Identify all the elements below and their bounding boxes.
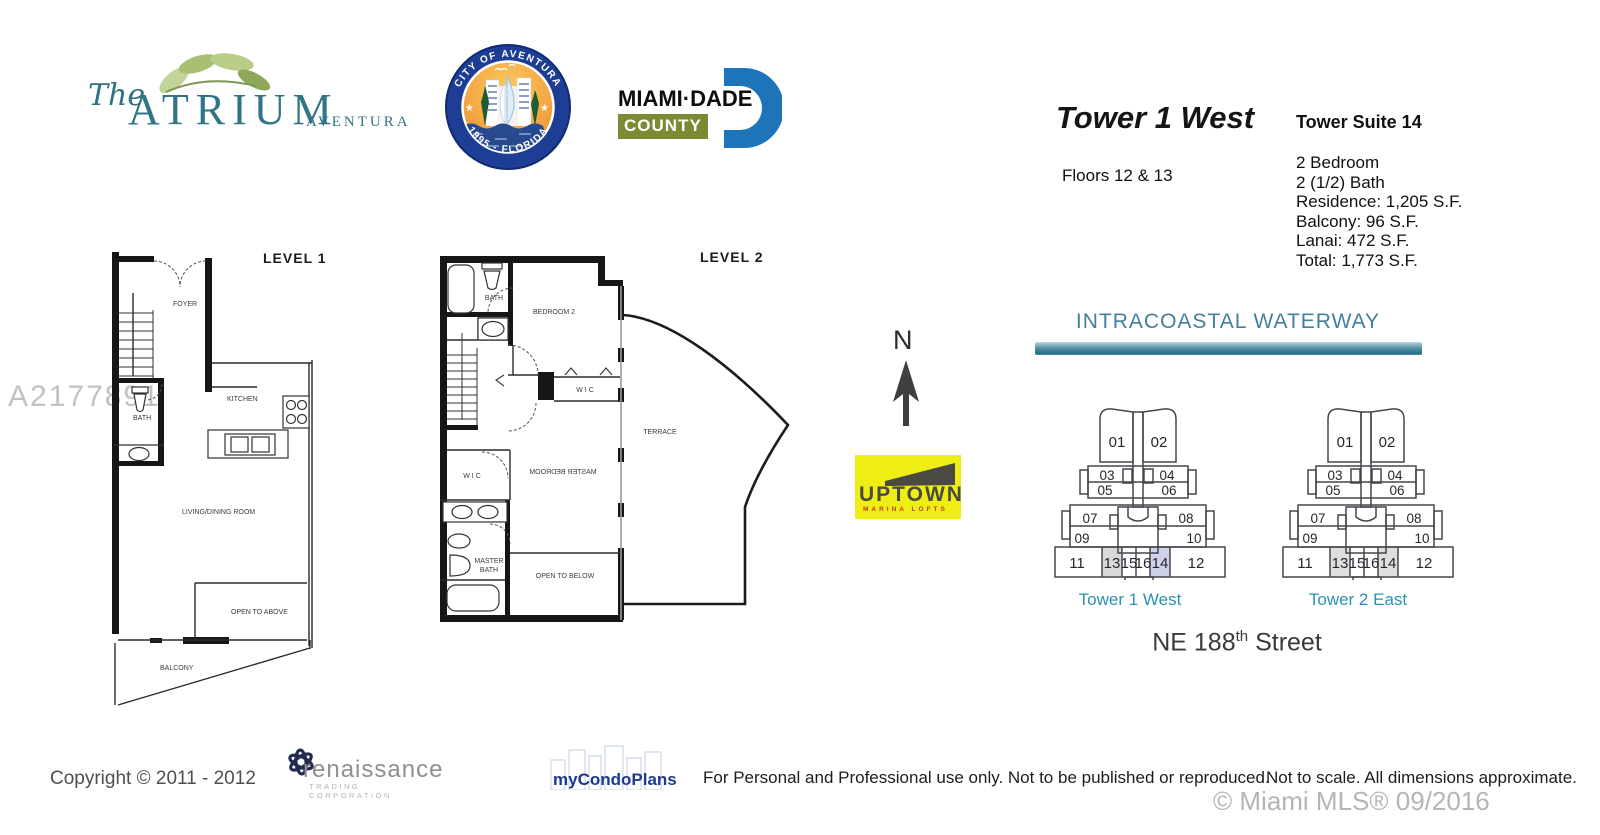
tower-2-east-label: Tower 2 East [1258, 590, 1458, 610]
sink-basin-right [252, 437, 269, 452]
toilet-bowl-icon [484, 271, 500, 290]
svg-text:10: 10 [1186, 531, 1201, 546]
uptown-logo: UPTOWN MARINA LOFTS [855, 455, 961, 519]
svg-text:09: 09 [1302, 531, 1317, 546]
t2-unit-numbers: 01 02 03 04 05 06 07 08 09 10 11 13 15 1… [1297, 434, 1432, 572]
svg-text:01: 01 [1109, 434, 1126, 451]
street-sup: th [1236, 628, 1249, 645]
toilet-tank-icon [482, 263, 502, 269]
svg-text:14: 14 [1152, 555, 1169, 572]
toilet-tank-icon [132, 387, 148, 393]
seal-star-left: ★ [465, 103, 474, 114]
level2-stairs [447, 333, 477, 428]
mycondoplans-logo: myCondoPlans [545, 744, 675, 794]
waterway-bar [1035, 342, 1422, 355]
master-bath-label-1: MASTER [474, 558, 503, 565]
balcony-label: BALCONY [160, 665, 194, 672]
level2-master-bath-fixtures [443, 502, 507, 611]
street-suffix: Street [1248, 628, 1322, 656]
tower-title: Tower 1 West [1056, 100, 1254, 136]
terrace-label: TERRACE [643, 429, 677, 436]
suite-detail-balcony: Balcony: 96 S.F. [1296, 212, 1462, 232]
uptown-name: UPTOWN [859, 483, 961, 507]
usage-note: For Personal and Professional use only. … [703, 768, 1270, 788]
miami-dade-county-box: COUNTY [618, 114, 708, 139]
bedroom2-label: BEDROOM 2 [533, 309, 575, 316]
tower-2-east-diagram: 01 02 03 04 05 06 07 08 09 10 11 13 15 1… [1258, 395, 1458, 580]
bath-sink-icon [482, 322, 504, 337]
floorplan-sheet: The ATRIUM AVENTURA [0, 0, 1600, 835]
level1-kitchen-fixtures [208, 396, 309, 458]
miami-dade-county-label: COUNTY [618, 114, 708, 139]
suite-detail-baths: 2 (1/2) Bath [1296, 173, 1462, 193]
toilet-bowl-icon [134, 394, 146, 412]
svg-text:14: 14 [1380, 555, 1397, 572]
miami-dade-logo: MIAMI·DADE COUNTY [618, 72, 778, 162]
mb-tub-icon [447, 585, 499, 611]
suite-detail-lanai: Lanai: 472 S.F. [1296, 231, 1462, 251]
svg-text:16: 16 [1135, 555, 1152, 572]
vanity-sink-left [452, 506, 472, 519]
svg-text:05: 05 [1325, 483, 1340, 498]
tower-1-west-label: Tower 1 West [1030, 590, 1230, 610]
svg-text:10: 10 [1414, 531, 1429, 546]
suite-detail-total: Total: 1,773 S.F. [1296, 251, 1462, 271]
stove-icon [283, 396, 309, 428]
svg-text:16: 16 [1363, 555, 1380, 572]
tub-icon [448, 265, 474, 313]
renaissance-logo: renaissance TRADING CORPORATION [283, 744, 433, 794]
svg-text:03: 03 [1099, 468, 1114, 483]
open-below-label: OPEN TO BELOW [536, 573, 595, 580]
atrium-logo: The ATRIUM AVENTURA [88, 48, 418, 148]
level2-floorplan: BATH BEDROOM 2 W I C W I C MASTER BEDROO… [432, 248, 792, 628]
master-bath-label-2: BATH [480, 567, 498, 574]
renaissance-name: renaissance [303, 756, 443, 784]
mb-sink-icon [448, 534, 470, 548]
street-prefix: NE 188 [1152, 628, 1235, 656]
svg-text:08: 08 [1406, 511, 1421, 526]
svg-text:07: 07 [1082, 511, 1097, 526]
seal-star-right: ★ [540, 103, 549, 114]
foyer-label: FOYER [173, 301, 197, 308]
north-label: N [893, 325, 913, 356]
svg-text:06: 06 [1389, 483, 1404, 498]
tower-1-west-diagram: 01 02 03 04 05 06 07 08 09 10 11 13 15 1… [1030, 395, 1230, 580]
terrace-outline [623, 315, 788, 604]
svg-text:01: 01 [1337, 434, 1354, 451]
kitchen-label: KITCHEN [227, 396, 258, 403]
suite-detail-residence: Residence: 1,205 S.F. [1296, 192, 1462, 212]
wic-lower-label: W I C [463, 473, 481, 480]
svg-text:12: 12 [1416, 555, 1433, 572]
svg-text:02: 02 [1151, 434, 1168, 451]
floors-label: Floors 12 & 13 [1062, 166, 1173, 186]
living-label: LIVING/DINING ROOM [182, 509, 255, 516]
copyright-text: Copyright © 2011 - 2012 [50, 768, 256, 790]
svg-text:08: 08 [1178, 511, 1193, 526]
svg-text:05: 05 [1097, 483, 1112, 498]
svg-text:11: 11 [1069, 555, 1085, 572]
mycondoplans-name: myCondoPlans [553, 770, 677, 790]
atrium-sub: AVENTURA [306, 114, 411, 131]
waterway-label: INTRACOASTAL WATERWAY [1076, 310, 1380, 334]
open-above-label: OPEN TO ABOVE [231, 609, 288, 616]
wic-upper-label: W I C [576, 387, 594, 394]
suite-details: 2 Bedroom 2 (1/2) Bath Residence: 1,205 … [1296, 153, 1462, 270]
level1-floorplan: FOYER KITCHEN BATH LIVING/DINING ROOM OP… [105, 248, 315, 708]
svg-text:11: 11 [1297, 555, 1313, 572]
sink-icon [129, 448, 149, 461]
t1-unit-numbers: 01 02 03 04 05 06 07 08 09 10 11 13 15 1… [1069, 434, 1204, 572]
bath-label: BATH [133, 415, 151, 422]
svg-text:13: 13 [1104, 555, 1121, 572]
suite-detail-bedrooms: 2 Bedroom [1296, 153, 1462, 173]
level1-bath-fixtures [114, 387, 164, 461]
svg-text:04: 04 [1159, 468, 1175, 483]
svg-text:07: 07 [1310, 511, 1325, 526]
svg-text:13: 13 [1332, 555, 1349, 572]
street-label: NE 188th Street [1152, 628, 1322, 657]
svg-text:04: 04 [1387, 468, 1403, 483]
mls-credit: © Miami MLS® 09/2016 [1213, 786, 1490, 817]
svg-text:06: 06 [1161, 483, 1176, 498]
svg-text:12: 12 [1188, 555, 1205, 572]
uptown-sub: MARINA LOFTS [863, 506, 948, 513]
svg-text:03: 03 [1327, 468, 1342, 483]
level1-stairs [118, 310, 153, 378]
miami-dade-d-icon [724, 66, 782, 152]
svg-text:09: 09 [1074, 531, 1089, 546]
sink-basin-left [231, 437, 248, 452]
vanity-sink-right [478, 506, 498, 519]
suite-title: Tower Suite 14 [1296, 112, 1422, 133]
svg-text:02: 02 [1379, 434, 1396, 451]
renaissance-sub: TRADING CORPORATION [309, 782, 433, 800]
master-bedroom-label-mirrored: MASTER BEDROOM [529, 469, 596, 476]
scale-note: Not to scale. All dimensions approximate… [1266, 768, 1577, 788]
aventura-seal: ★ ★ CITY OF AVENTURA 1995 - FLORIDA [443, 42, 573, 172]
bath2-label: BATH [485, 295, 503, 302]
north-arrow-icon [889, 360, 923, 430]
mb-toilet-icon [450, 555, 470, 576]
